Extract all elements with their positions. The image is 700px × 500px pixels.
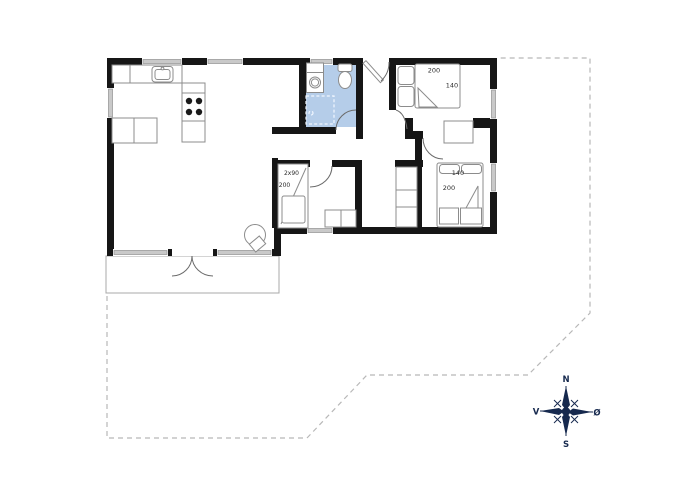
bed-width-label: 140 <box>452 169 464 177</box>
kitchen-island <box>112 118 157 143</box>
terrace-door-opening <box>172 249 213 256</box>
compass-east-label: Ø <box>593 408 600 419</box>
window <box>207 58 243 65</box>
wall <box>490 58 497 234</box>
compass-north-label: N <box>562 375 569 385</box>
wall <box>107 58 114 256</box>
bed-length-label: 200 <box>428 67 440 75</box>
window <box>307 227 333 234</box>
kids-room-door-opening <box>310 160 332 167</box>
bed-length-label: 200 <box>443 184 455 192</box>
washing-machine-icon <box>307 73 324 93</box>
sink-icon <box>152 67 173 83</box>
compass-west-label: V <box>533 408 540 418</box>
wall <box>299 58 306 134</box>
closet <box>444 121 473 143</box>
bunk-size-label: 2x90 <box>284 170 299 177</box>
bedroom-second-door-swing <box>423 138 443 159</box>
wall <box>473 118 490 128</box>
compass-rose-icon: N Ø S V <box>533 375 601 450</box>
wall <box>272 127 336 134</box>
window <box>490 163 497 192</box>
bed-width-label: 140 <box>446 82 458 90</box>
window <box>217 249 272 256</box>
bunk-length-label: 200 <box>279 182 291 189</box>
wall <box>356 58 363 139</box>
wall <box>389 58 396 110</box>
kitchen-area <box>112 65 205 143</box>
bedroom-second: 140 200 <box>396 138 483 227</box>
cabinet <box>325 210 356 227</box>
compass-south-label: S <box>563 440 569 450</box>
window <box>113 249 168 256</box>
window <box>142 58 182 65</box>
kids-room: 2x90 200 <box>278 164 356 228</box>
kids-room-door-swing <box>310 166 332 187</box>
wood-stove-icon <box>245 225 266 253</box>
window <box>107 88 114 118</box>
wardrobe <box>396 167 417 227</box>
floor-plan-drawing: 200 140 140 200 2x90 200 <box>0 0 700 500</box>
wall <box>272 158 278 228</box>
bathroom-door-opening <box>336 127 356 134</box>
toilet-icon <box>338 64 352 89</box>
wall <box>395 160 423 167</box>
bathroom-shelf <box>307 63 324 73</box>
floor-plan-page: 200 140 140 200 2x90 200 <box>0 0 700 500</box>
window <box>490 89 497 119</box>
